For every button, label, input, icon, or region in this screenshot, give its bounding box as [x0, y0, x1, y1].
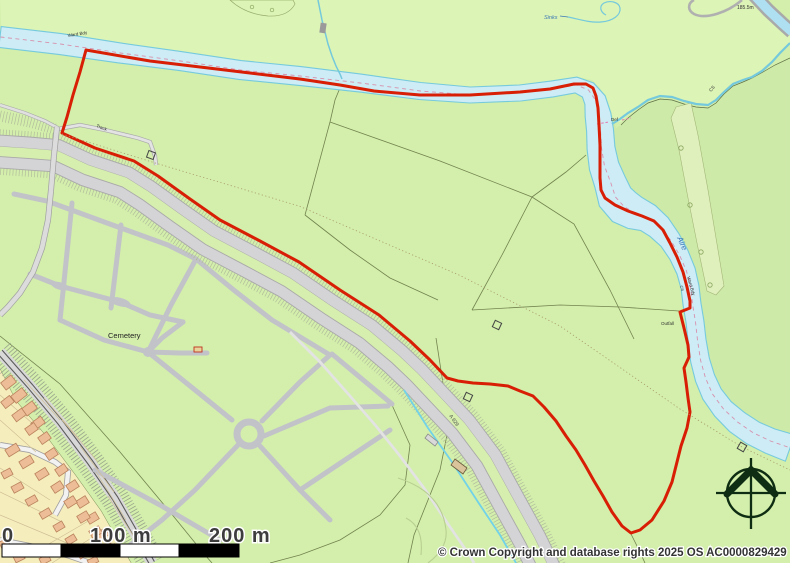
svg-text:100 m: 100 m	[90, 525, 152, 547]
svg-text:© Crown Copyright and database: © Crown Copyright and database rights 20…	[438, 547, 787, 559]
svg-text:185.5m: 185.5m	[737, 5, 754, 11]
svg-text:Def: Def	[611, 117, 619, 122]
svg-text:Outfall: Outfall	[661, 321, 674, 326]
svg-text:Cemetery: Cemetery	[108, 331, 141, 340]
svg-text:200 m: 200 m	[209, 525, 271, 547]
svg-text:0: 0	[2, 525, 14, 547]
svg-text:Sinks: Sinks	[544, 15, 558, 21]
